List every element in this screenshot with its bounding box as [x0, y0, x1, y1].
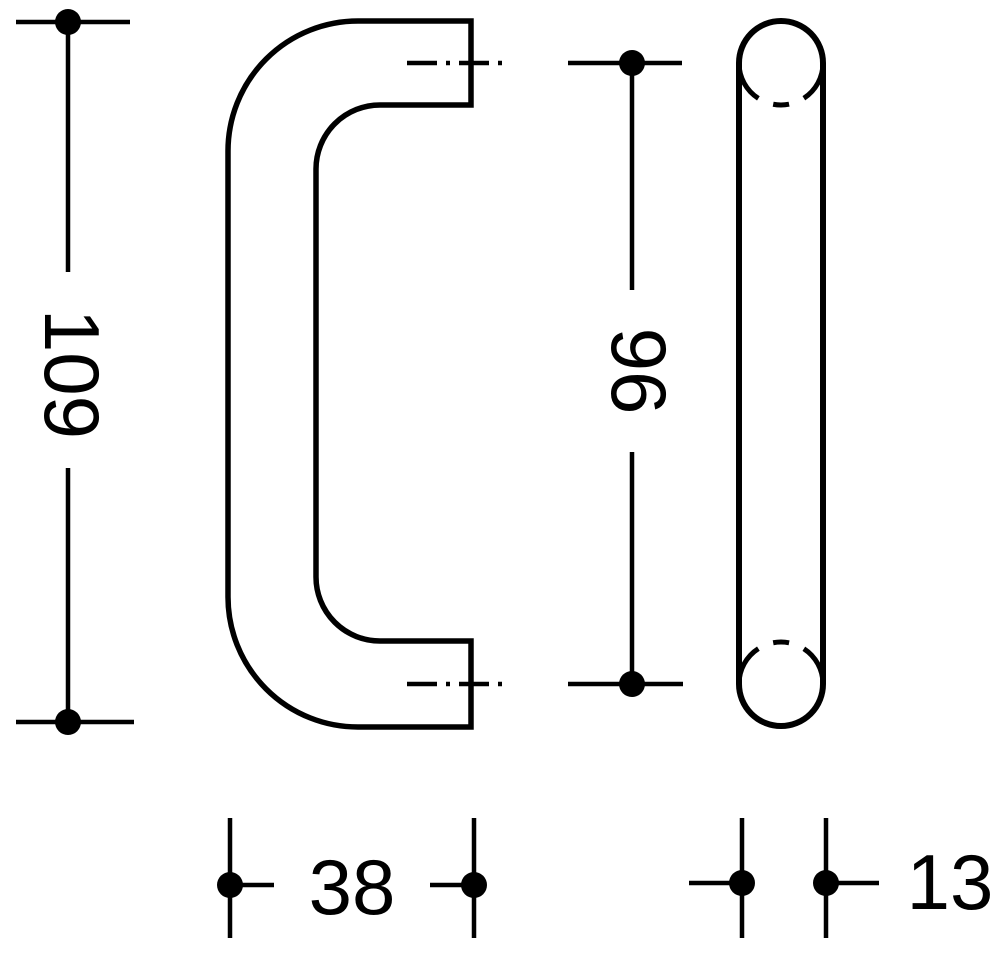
dimension-dot-left: [217, 872, 243, 898]
dimension-dot-left: [729, 870, 755, 896]
dimension-dot-top: [619, 50, 645, 76]
dimension-tube-diameter: 13: [689, 818, 993, 938]
dimension-dot-right: [461, 872, 487, 898]
dimension-value-overall-length: 109: [28, 309, 116, 439]
side-view-outline: [228, 21, 471, 727]
drawing-root: 109 96 38: [16, 9, 993, 938]
dimension-overall-length: 109: [16, 9, 134, 735]
dimension-value-hole-spacing: 96: [595, 328, 683, 415]
handle-side-view: [228, 21, 503, 727]
front-view-outline: [739, 21, 823, 726]
technical-drawing-canvas: 109 96 38: [0, 0, 1000, 955]
dimension-dot-right: [813, 870, 839, 896]
dimension-dot-bottom: [619, 671, 645, 697]
dimension-dot-bottom: [55, 709, 81, 735]
dimension-value-grip-depth: 38: [309, 843, 396, 931]
handle-dimension-drawing: 109 96 38: [0, 0, 1000, 955]
dimension-hole-spacing: 96: [568, 50, 683, 697]
dimension-value-tube-diameter: 13: [907, 838, 994, 926]
dimension-grip-depth: 38: [217, 818, 487, 938]
handle-front-view: [739, 21, 823, 726]
dimension-dot-top: [55, 9, 81, 35]
